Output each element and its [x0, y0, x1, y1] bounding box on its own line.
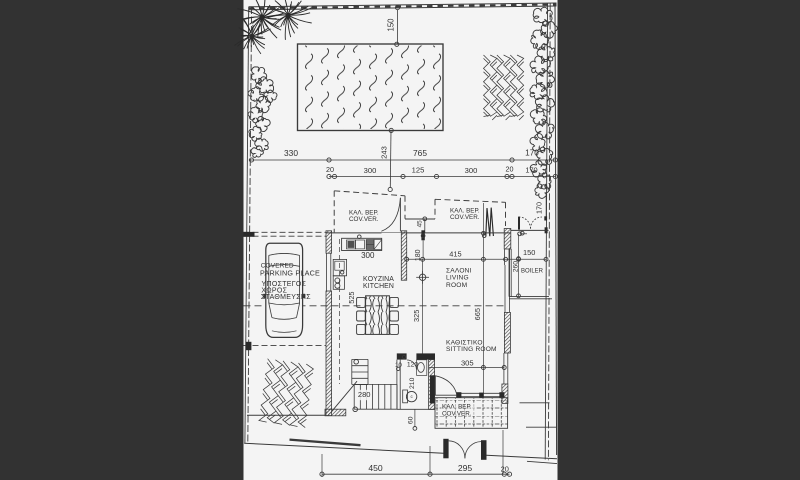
svg-text:LIVING: LIVING — [446, 274, 469, 281]
svg-text:60: 60 — [408, 416, 415, 424]
svg-text:COV.VER.: COV.VER. — [450, 214, 480, 221]
svg-text:525: 525 — [347, 291, 356, 303]
svg-text:210: 210 — [409, 377, 416, 389]
svg-text:300: 300 — [465, 166, 478, 175]
svg-text:BOILER: BOILER — [521, 268, 544, 274]
svg-text:KITCHEN: KITCHEN — [363, 283, 394, 290]
svg-text:45: 45 — [416, 220, 423, 228]
svg-text:ΣΤΑΘΜΕΥΣΗΣ: ΣΤΑΘΜΕΥΣΗΣ — [261, 294, 311, 301]
svg-text:280: 280 — [358, 390, 371, 399]
svg-text:KOYZINA: KOYZINA — [363, 276, 394, 283]
svg-text:450: 450 — [368, 463, 383, 473]
svg-text:SITTING ROOM: SITTING ROOM — [446, 346, 497, 353]
svg-text:665: 665 — [473, 308, 482, 320]
svg-text:20: 20 — [506, 164, 514, 173]
svg-text:305: 305 — [461, 359, 474, 368]
svg-text:150: 150 — [523, 248, 535, 257]
svg-text:300: 300 — [361, 251, 375, 260]
svg-text:150: 150 — [386, 18, 395, 32]
svg-text:295: 295 — [458, 463, 473, 473]
svg-text:765: 765 — [413, 148, 427, 158]
svg-text:330: 330 — [284, 148, 298, 158]
svg-text:ROOM: ROOM — [446, 282, 467, 289]
svg-text:120: 120 — [407, 361, 419, 368]
svg-text:PARKING PLACE: PARKING PLACE — [260, 269, 320, 278]
svg-text:20: 20 — [326, 165, 334, 174]
svg-text:COV.VER.: COV.VER. — [442, 411, 472, 418]
svg-text:170: 170 — [525, 165, 537, 174]
svg-text:170: 170 — [535, 202, 544, 214]
svg-text:300: 300 — [364, 166, 377, 175]
svg-text:415: 415 — [449, 250, 461, 259]
svg-text:20: 20 — [501, 465, 509, 474]
svg-text:125: 125 — [412, 165, 425, 174]
svg-text:COV.VER.: COV.VER. — [349, 216, 379, 223]
svg-text:ΚΑΛ. ΒΕΡ.: ΚΑΛ. ΒΕΡ. — [442, 404, 472, 411]
svg-text:10: 10 — [395, 362, 402, 369]
svg-text:170: 170 — [525, 148, 539, 157]
svg-text:325: 325 — [412, 310, 421, 322]
svg-text:243: 243 — [380, 146, 389, 159]
